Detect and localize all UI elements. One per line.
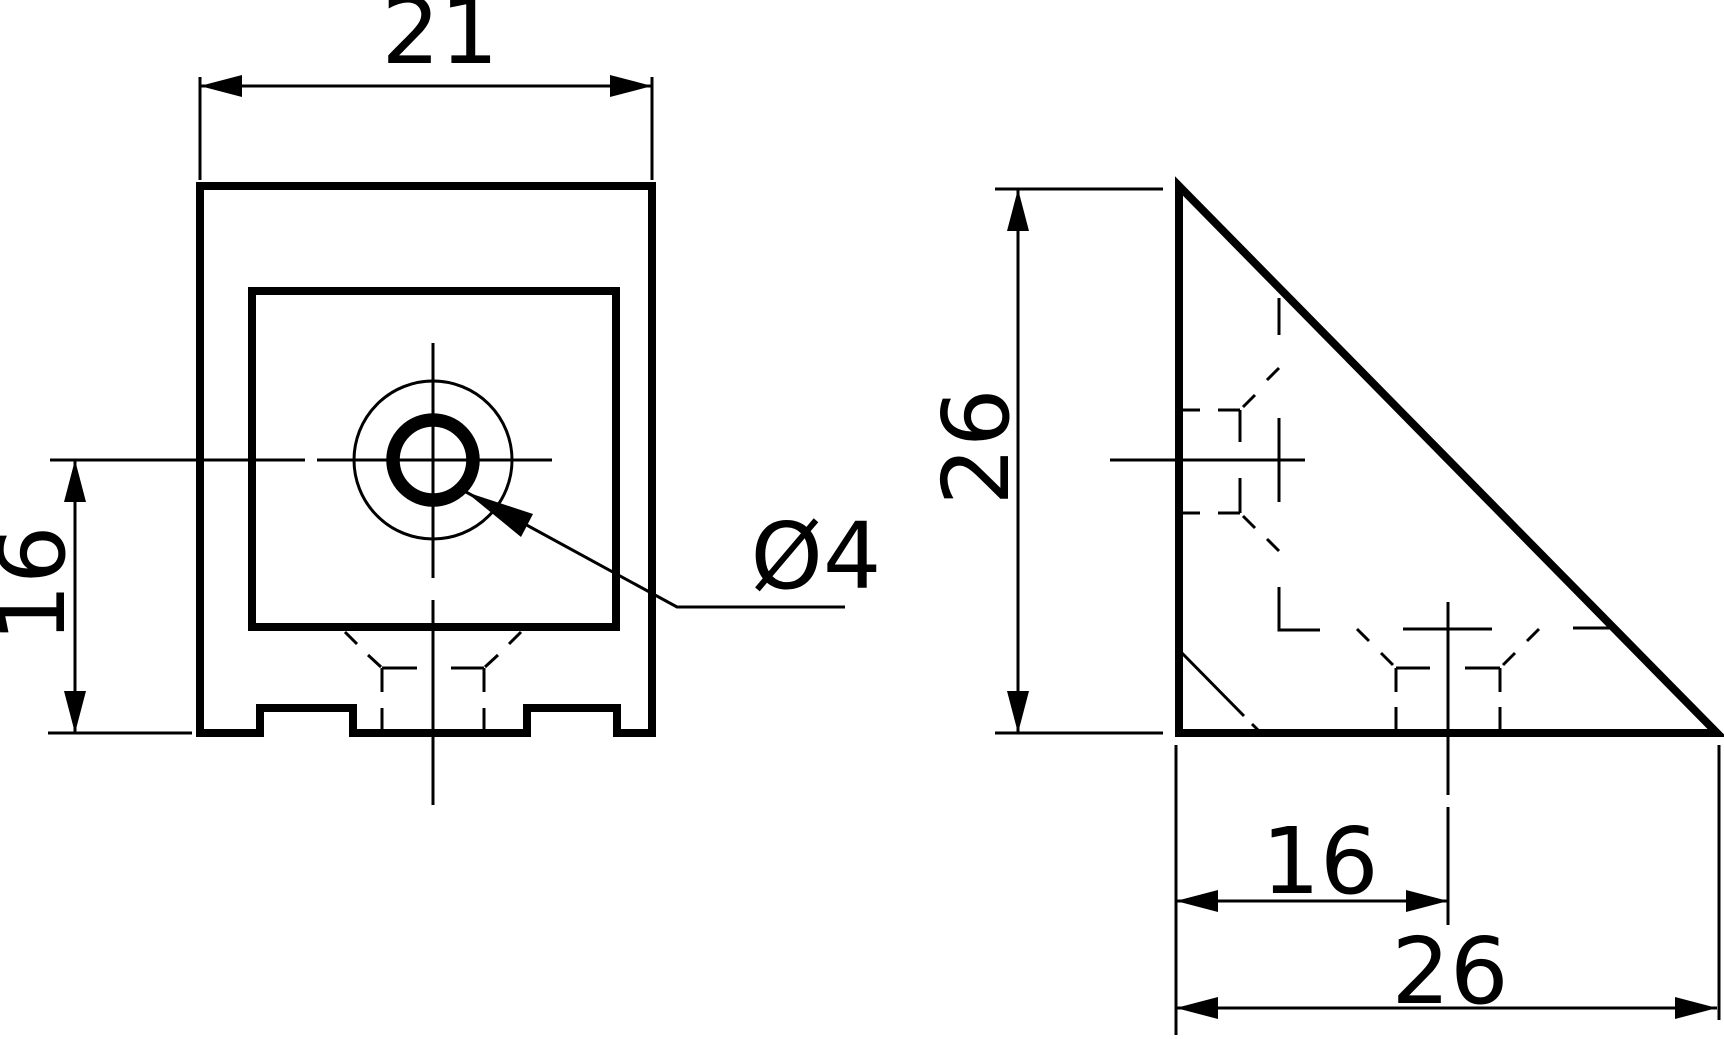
front-dim-width-label: 21 — [381, 0, 498, 85]
front-dimension-hole-offset: 16 — [0, 460, 192, 733]
front-hole-diameter-callout: Ø4 — [466, 492, 881, 610]
side-dim-height-label: 26 — [923, 388, 1030, 505]
side-dim-depth-label: 26 — [1391, 918, 1508, 1025]
technical-drawing-canvas: 21 16 Ø4 — [0, 0, 1724, 1039]
side-dim-offset-label: 16 — [1261, 808, 1378, 915]
side-dimension-hole-offset: 16 — [1176, 808, 1448, 915]
front-dim-offset-label: 16 — [0, 525, 86, 642]
front-view: 21 16 Ø4 — [0, 0, 881, 805]
side-dimension-depth: 26 — [1176, 918, 1717, 1025]
drawing-page: 21 16 Ø4 — [0, 0, 1724, 1039]
front-dimension-width: 21 — [200, 0, 652, 180]
front-hole-diameter-label: Ø4 — [751, 503, 882, 610]
front-dim-width-extension-lines — [200, 77, 652, 180]
side-view: 26 16 26 — [923, 186, 1719, 1035]
front-callout-arrowhead — [466, 492, 533, 537]
side-hidden-lines — [1176, 298, 1612, 733]
